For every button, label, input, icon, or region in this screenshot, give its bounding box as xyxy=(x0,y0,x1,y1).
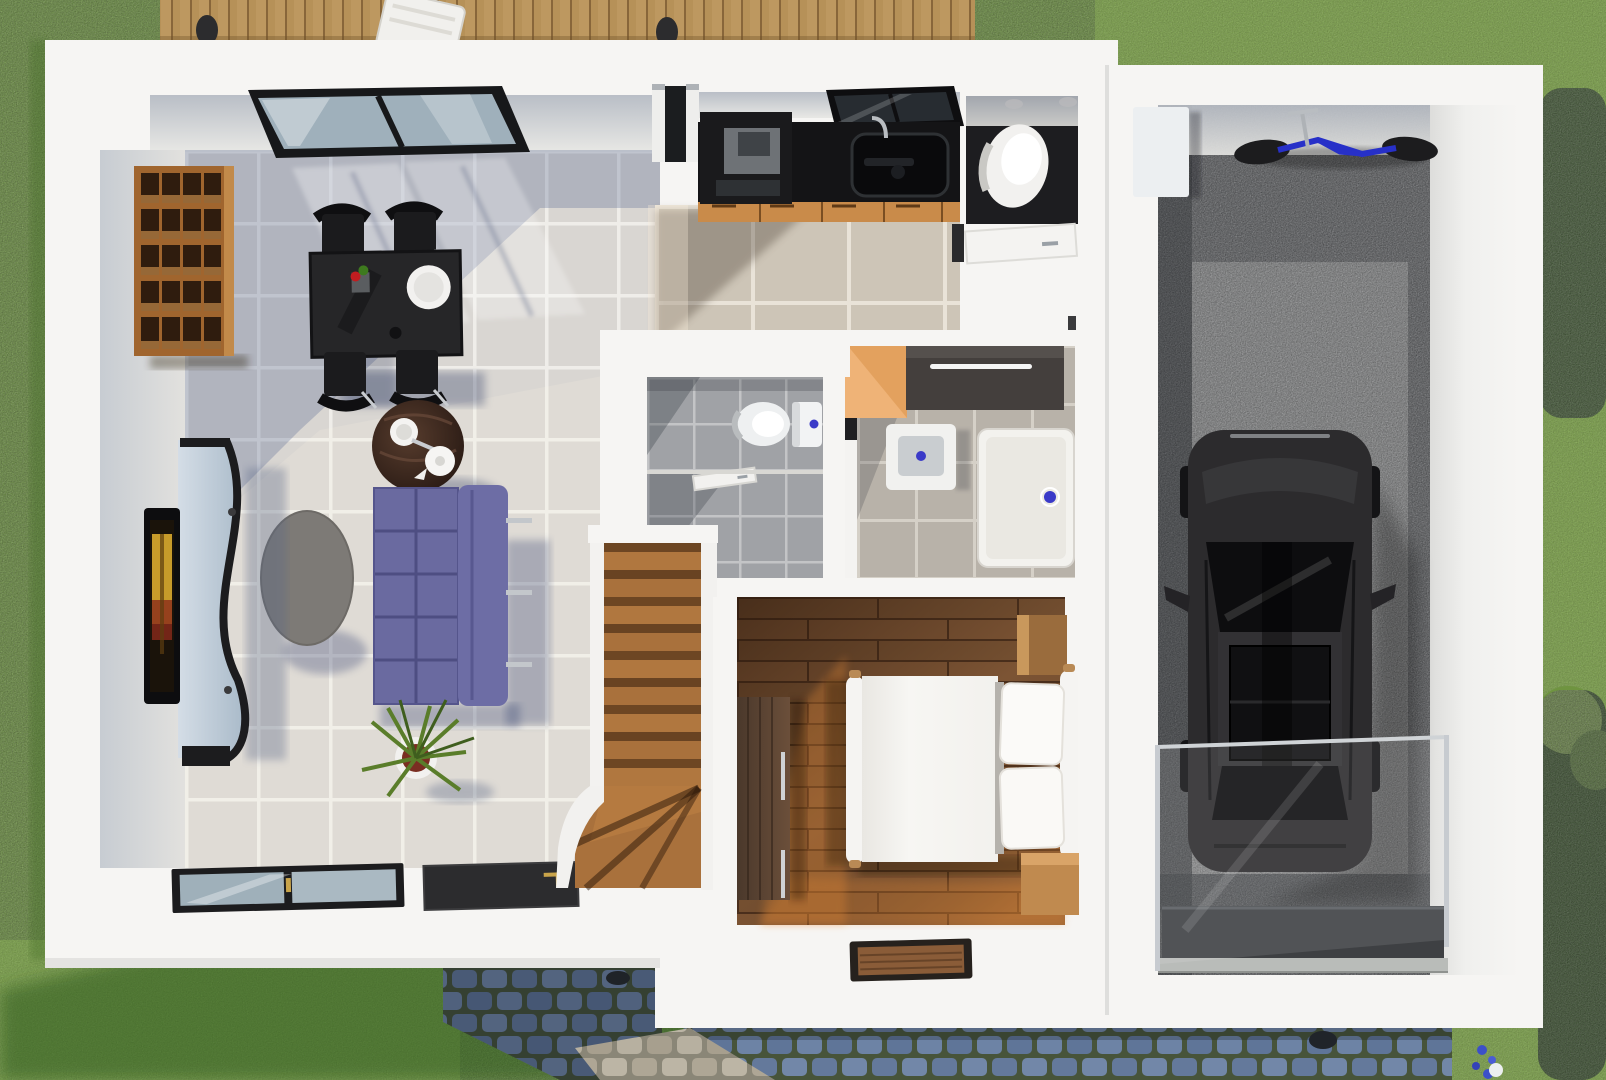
white-garden-ball xyxy=(1489,1063,1503,1077)
flush-button xyxy=(810,420,819,429)
washbasin xyxy=(886,424,970,490)
shower-tray xyxy=(978,429,1074,567)
wall-tv xyxy=(144,508,180,704)
ceiling-spot xyxy=(1005,99,1023,109)
black-countertop xyxy=(698,112,960,222)
dresser-handle xyxy=(930,364,1032,369)
hedge-bottom-right xyxy=(1534,686,1606,1080)
shower-bathroom xyxy=(835,340,1075,583)
pillow xyxy=(1000,683,1065,765)
ceiling-spot xyxy=(1059,97,1077,107)
wc-top xyxy=(952,96,1078,263)
sofa-backrest xyxy=(458,485,508,706)
hedge-top-right xyxy=(1540,88,1606,418)
door-gap xyxy=(952,224,964,262)
duvet xyxy=(862,676,998,862)
wardrobe-handle xyxy=(781,850,785,898)
winder-steps xyxy=(556,786,701,888)
shower-drain xyxy=(1044,491,1056,503)
dark-dresser xyxy=(906,346,1064,410)
sliding-glass-door xyxy=(171,863,404,913)
bedroom xyxy=(713,597,1079,982)
drain-cover xyxy=(606,971,630,985)
skylight xyxy=(248,86,530,158)
pillow xyxy=(1000,767,1065,849)
basin-drain xyxy=(916,451,926,461)
dark-entry-panel xyxy=(423,862,578,910)
floorplan-svg xyxy=(0,0,1606,1080)
garage xyxy=(1133,105,1520,975)
deck-door xyxy=(652,84,699,162)
toilet xyxy=(735,402,822,447)
cobble-path-street xyxy=(575,1028,1452,1080)
bedroom-doormat xyxy=(849,938,972,981)
stringer-left xyxy=(590,543,604,788)
living-dining-room xyxy=(100,86,660,913)
bookshelf xyxy=(134,166,248,369)
storage-block xyxy=(1133,107,1201,198)
garage-front xyxy=(1155,735,1449,973)
wardrobe xyxy=(737,697,806,900)
floorplan-render xyxy=(0,0,1606,1080)
bed-roll-left xyxy=(846,676,864,864)
double-bed xyxy=(826,664,1078,876)
nightstand-bottom xyxy=(1021,853,1079,915)
glass-screen xyxy=(1155,735,1449,971)
dining-table xyxy=(310,251,462,358)
wardrobe-handle xyxy=(781,752,785,800)
bedroom-left-wall xyxy=(713,597,737,925)
straight-treads xyxy=(604,543,701,786)
nightstand-top xyxy=(1017,615,1067,675)
drain-cover-2 xyxy=(1309,1031,1337,1049)
wc-door xyxy=(965,224,1077,264)
door-handle xyxy=(286,878,291,892)
purple-sofa xyxy=(374,485,550,728)
